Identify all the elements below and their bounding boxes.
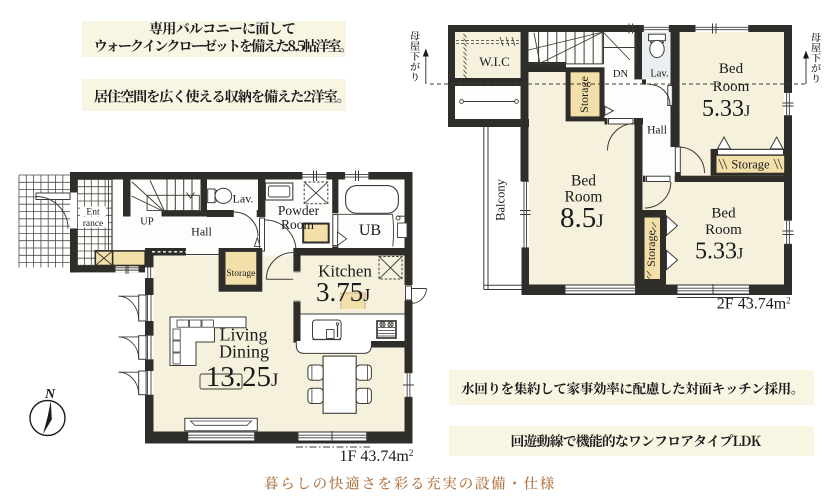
svg-text:Storage: Storage — [644, 230, 658, 267]
svg-text:3.75J: 3.75J — [316, 277, 370, 307]
svg-text:Ent: Ent — [86, 208, 100, 218]
svg-text:13.25J: 13.25J — [206, 361, 279, 393]
svg-text:Room: Room — [713, 79, 750, 95]
svg-text:UB: UB — [359, 222, 381, 239]
svg-text:Hall: Hall — [647, 125, 667, 137]
svg-text:Balcony: Balcony — [494, 178, 508, 220]
svg-text:Lav.: Lav. — [233, 192, 254, 206]
svg-text:Lav.: Lav. — [650, 69, 668, 80]
svg-text:5.33J: 5.33J — [702, 96, 750, 122]
svg-text:Powder: Powder — [278, 203, 320, 218]
svg-text:Storage: Storage — [226, 269, 255, 279]
svg-text:Bed: Bed — [711, 206, 736, 222]
svg-text:Dining: Dining — [219, 342, 269, 362]
svg-text:5.33J: 5.33J — [695, 239, 743, 265]
svg-text:2F 43.74m2: 2F 43.74m2 — [717, 296, 791, 313]
svg-text:rance: rance — [83, 219, 104, 229]
svg-text:Storage: Storage — [731, 158, 770, 172]
svg-text:UP: UP — [140, 217, 154, 228]
svg-text:1F 43.74m2: 1F 43.74m2 — [340, 448, 414, 465]
svg-text:W.I.C: W.I.C — [479, 54, 510, 69]
svg-text:Hall: Hall — [191, 225, 212, 239]
svg-text:DN: DN — [613, 69, 629, 80]
svg-text:Bed: Bed — [719, 61, 744, 77]
svg-text:Room: Room — [281, 217, 315, 232]
svg-text:N: N — [44, 387, 56, 402]
svg-text:Storage: Storage — [577, 76, 591, 113]
svg-text:Room: Room — [705, 222, 742, 238]
svg-text:Bed: Bed — [571, 173, 596, 190]
